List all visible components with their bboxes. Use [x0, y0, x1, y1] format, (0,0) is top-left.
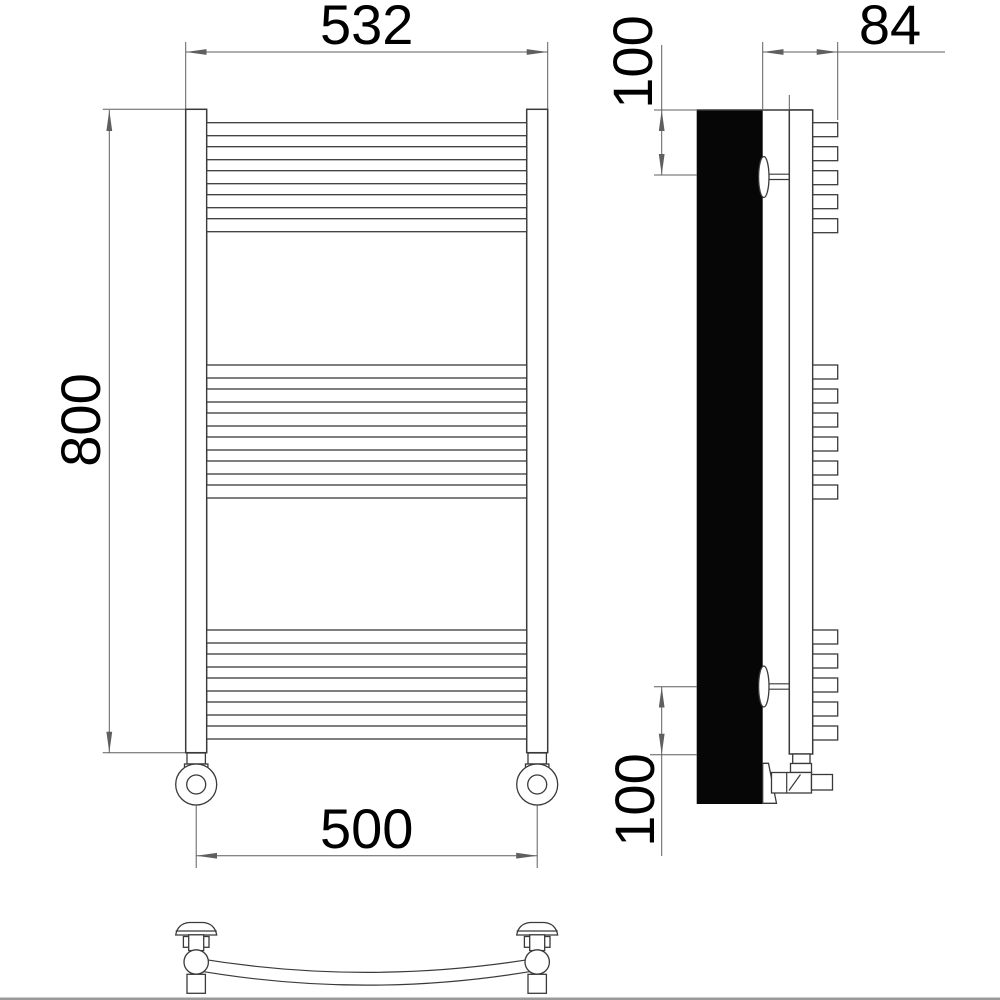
crossbar-end-tab [813, 147, 838, 161]
valve-inner-circle [187, 775, 206, 794]
crossbar-end-tab [813, 678, 838, 692]
crossbar-tube [207, 195, 527, 208]
dim-connection-spacing: 500 [196, 797, 537, 860]
crossbar-tube [207, 147, 527, 160]
crossbar-end-tab [813, 123, 838, 137]
bottom-right-valve [517, 923, 558, 994]
crossbar-tube [207, 485, 527, 498]
crossbar-end-tab [813, 485, 838, 499]
valve-handle-cap [176, 923, 217, 936]
side-valve-assembly [763, 754, 833, 803]
bottom-view [176, 923, 558, 994]
side-profile-band [697, 110, 763, 804]
crossbar-end-tab [813, 365, 838, 379]
crossbar-end-tab [813, 630, 838, 644]
crossbar-tube [207, 461, 527, 474]
left-valve [176, 753, 217, 868]
curved-tube-top-edge [196, 958, 537, 972]
left-rail [186, 109, 207, 752]
valve-collar [187, 753, 205, 764]
side-rail-column [789, 110, 812, 754]
crossbar-end-tab [813, 195, 838, 209]
valve-body [772, 773, 812, 794]
crossbar-tube [207, 726, 527, 739]
dim-label-bottom-bracket-offset: 100 [603, 753, 666, 846]
valve-neck [793, 754, 810, 764]
crossbar-tube [207, 171, 527, 184]
bottom-bracket [759, 666, 790, 707]
dim-side-depth: 84 [763, 0, 945, 120]
dim-front-height: 800 [49, 109, 207, 752]
drawing-canvas: 800 532 [0, 0, 1000, 1000]
crossbar-tube [207, 413, 527, 426]
valve-stem [530, 935, 545, 951]
right-valve [517, 753, 558, 868]
dim-label-side-depth: 84 [859, 0, 921, 56]
dim-bottom-bracket-offset: 100 [603, 687, 697, 856]
valve-body-circle [184, 950, 208, 974]
crossbar-end-tab [813, 389, 838, 403]
dim-label-connection-spacing: 500 [320, 797, 413, 860]
crossbar-end-tab [813, 702, 838, 716]
valve-foot [187, 974, 205, 993]
crossbar-end-tab [813, 171, 838, 185]
dim-label-front-height: 800 [49, 373, 112, 466]
crossbar-tube [207, 678, 527, 691]
valve-handle-cap [517, 923, 558, 936]
crossbar-end-tab [813, 461, 838, 475]
valve-flange [791, 764, 812, 773]
bracket-lens [759, 157, 769, 198]
crossbar-tubes [207, 123, 527, 739]
valve-body-circle [525, 950, 549, 974]
right-rail [527, 109, 548, 752]
dim-label-top-bracket-offset: 100 [601, 15, 664, 108]
crossbar-tube [207, 654, 527, 667]
crossbar-tube [207, 123, 527, 136]
bottom-left-valve [176, 923, 217, 994]
front-view: 800 532 [49, 0, 558, 868]
valve-stem [189, 935, 204, 951]
dim-label-front-width: 532 [320, 0, 413, 56]
crossbar-end-tabs [813, 123, 838, 740]
crossbar-end-tab [813, 219, 838, 233]
dim-front-width: 532 [186, 0, 548, 109]
crossbar-end-tab [813, 654, 838, 668]
crossbar-tube [207, 702, 527, 715]
valve-foot [528, 974, 546, 993]
bracket-lens [759, 666, 769, 707]
crossbar-end-tab [813, 413, 838, 427]
crossbar-tube [207, 219, 527, 232]
crossbar-end-tab [813, 437, 838, 451]
crossbar-end-tab [813, 726, 838, 740]
valve-collar [528, 753, 546, 764]
crossbar-tube [207, 365, 527, 378]
valve-inner-circle [528, 775, 547, 794]
wall-pipe-stub [812, 775, 833, 791]
crossbar-tube [207, 389, 527, 402]
dim-top-bracket-offset: 100 [601, 15, 697, 175]
crossbar-tube [207, 437, 527, 450]
crossbar-tube [207, 630, 527, 643]
technical-drawing: 800 532 [0, 0, 1000, 1000]
side-view: 84 100 100 [601, 0, 945, 856]
top-bracket [759, 157, 790, 198]
